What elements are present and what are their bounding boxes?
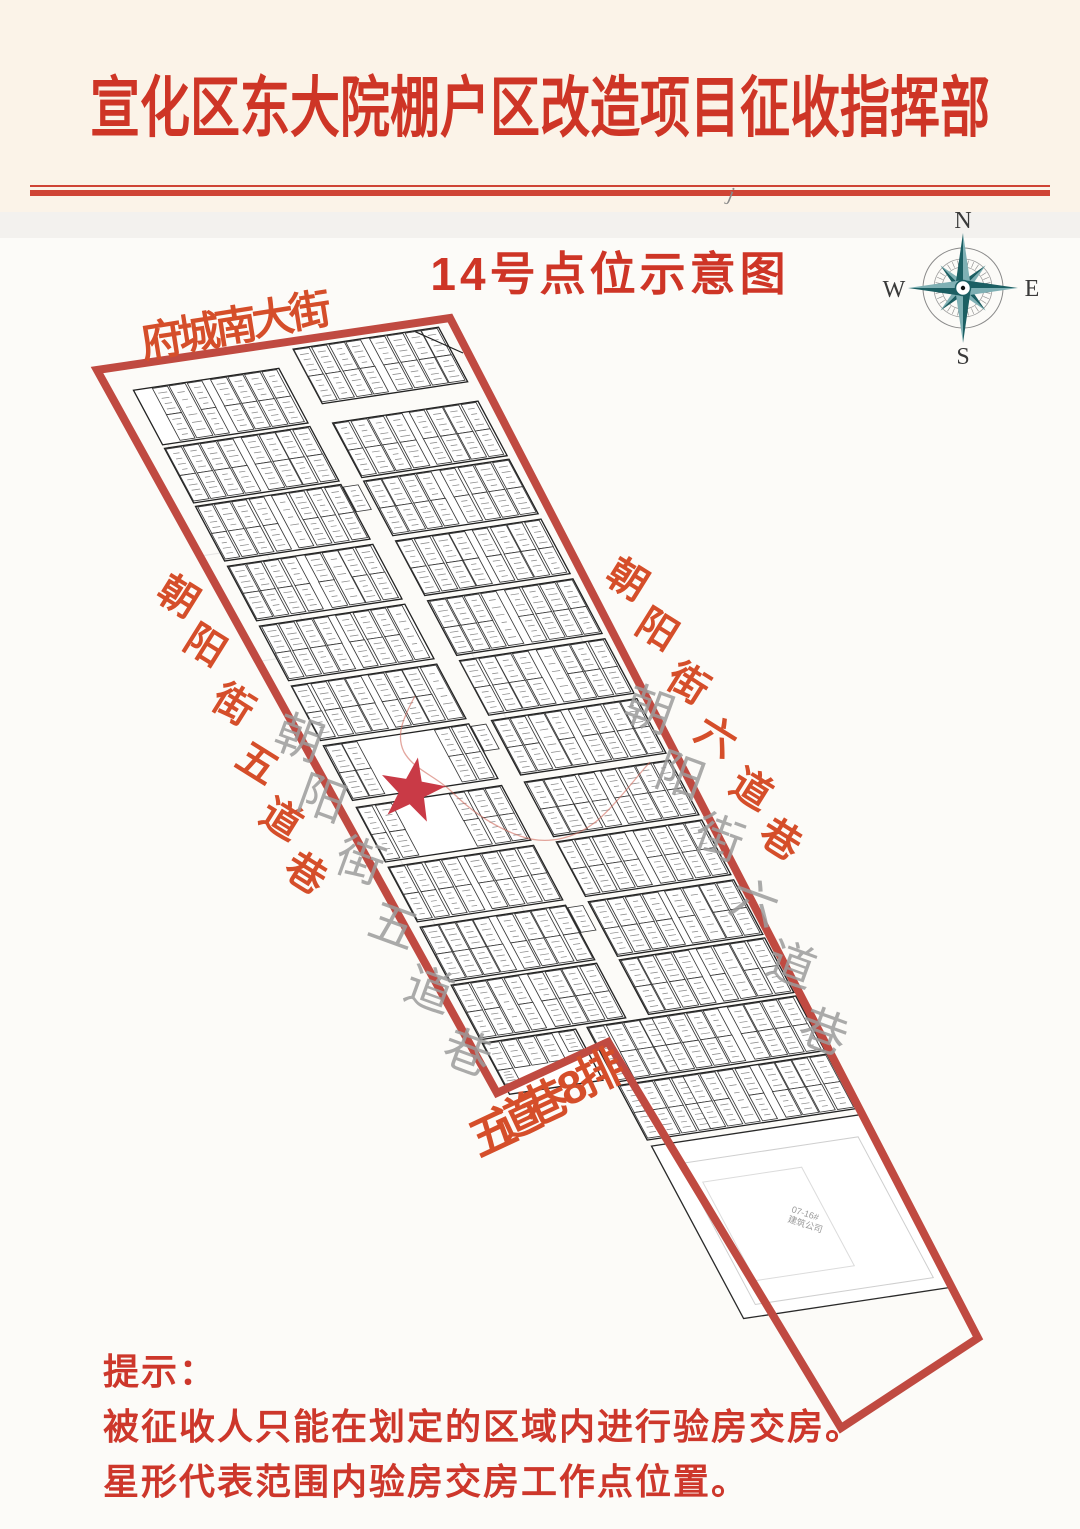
compass-letter-n: N <box>954 208 971 234</box>
stray-mark: j <box>723 183 736 206</box>
compass-rose: NESW <box>883 208 1040 370</box>
svg-text:街: 街 <box>285 285 335 338</box>
svg-text:道: 道 <box>722 761 779 820</box>
parcel-grid <box>125 327 856 1156</box>
compass-letter-e: E <box>1025 276 1040 302</box>
svg-text:街: 街 <box>204 675 262 734</box>
svg-text:朝: 朝 <box>598 551 655 610</box>
svg-text:阳: 阳 <box>176 617 233 676</box>
compass-letter-w: W <box>883 277 906 303</box>
site-map: 07-16#建筑公司府城南大街朝阳街五道巷朝阳街六道巷五道巷8排朝阳街五道巷朝阳… <box>0 0 1080 1529</box>
tip-line-1: 被征收人只能在划定的区域内进行验房交房。 <box>103 1399 863 1454</box>
tip-line-2: 星形代表范围内验房交房工作点位置。 <box>103 1454 863 1509</box>
svg-text:巷: 巷 <box>751 810 810 870</box>
tip-block: 提示： 被征收人只能在划定的区域内进行验房交房。 星形代表范围内验房交房工作点位… <box>103 1344 863 1509</box>
compass-letter-s: S <box>956 344 969 370</box>
svg-text:阳: 阳 <box>628 601 685 660</box>
poster-page: 宣化区东大院棚户区改造项目征收指挥部 14号点位示意图 07-16#建筑公司府城… <box>0 0 1080 1529</box>
tip-heading: 提示： <box>103 1344 863 1399</box>
svg-text:朝: 朝 <box>149 568 206 627</box>
construction-block: 07-16#建筑公司 <box>651 1115 951 1319</box>
svg-text:巷: 巷 <box>276 844 335 904</box>
